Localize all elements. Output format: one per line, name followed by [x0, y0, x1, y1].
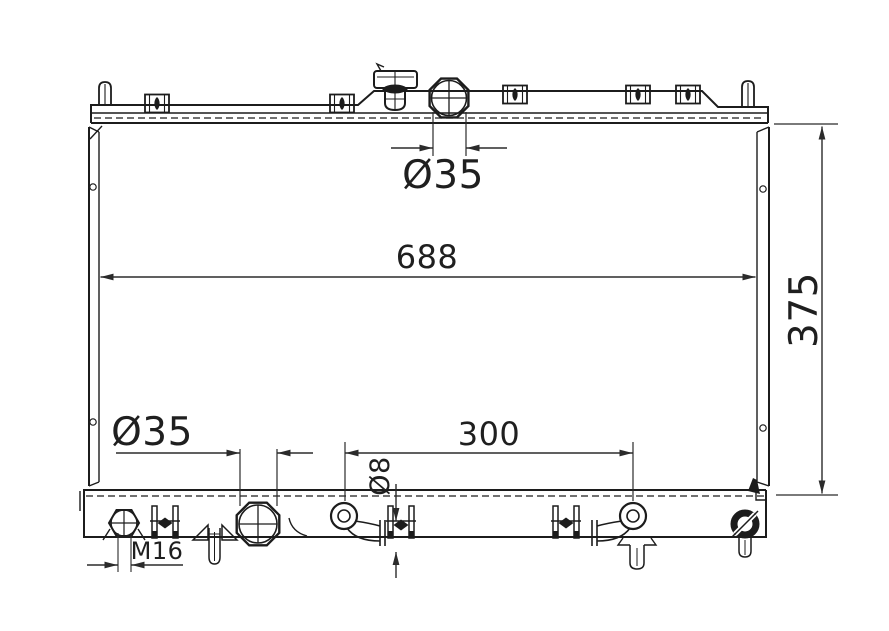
bottom-tank — [80, 490, 766, 537]
inlet-neck-opening — [430, 79, 469, 118]
top-mounting-clip-4 — [626, 86, 650, 104]
label-core-width: 688 — [396, 238, 459, 276]
side-hole — [760, 425, 766, 431]
lower-bracket-and-peg — [193, 525, 237, 564]
dimension-bottom-outlet-diameter: Ø35 — [111, 410, 313, 506]
top-mounting-clip-5 — [676, 86, 700, 104]
mounting-bolt-right — [732, 511, 758, 557]
mounting-pin-left — [99, 82, 111, 105]
radiator-technical-drawing: Ø35 688 375 Ø35 300 Ø8 M16 — [0, 0, 889, 631]
label-bottom-outlet-diameter: Ø35 — [111, 410, 193, 455]
filler-cap — [374, 64, 417, 110]
outlet-opening-bottom — [237, 503, 280, 546]
side-hole — [760, 186, 766, 192]
label-top-inlet-diameter: Ø35 — [402, 153, 484, 198]
drawing-sheet: Ø35 688 375 Ø35 300 Ø8 M16 — [0, 0, 889, 631]
dimension-core-width: 688 — [101, 238, 756, 277]
dimension-drain-plug-thread: M16 — [87, 533, 183, 572]
top-mounting-clip-2 — [330, 95, 354, 113]
side-hole — [90, 419, 96, 425]
bottom-clip-right — [551, 506, 581, 538]
weld-line — [289, 518, 307, 536]
label-drain-hole-diameter: Ø8 — [365, 456, 396, 495]
bottom-clip-left — [150, 506, 180, 538]
mounting-pin-right — [742, 81, 754, 107]
dimension-core-height: 375 — [774, 124, 838, 495]
dimension-drain-hole: Ø8 — [365, 456, 396, 578]
dimension-top-inlet-diameter: Ø35 — [391, 112, 507, 198]
outlet-pipe-left — [331, 503, 385, 546]
label-drain-plug-thread: M16 — [131, 537, 184, 565]
top-mounting-clip-3 — [503, 86, 527, 104]
drain-plug — [103, 510, 145, 540]
side-hole — [90, 184, 96, 190]
channel-end-hook — [748, 478, 760, 494]
label-core-height: 375 — [782, 272, 827, 348]
label-fitting-spacing: 300 — [458, 415, 521, 453]
top-mounting-clip-1 — [145, 95, 169, 113]
bottom-clip-center — [386, 506, 416, 538]
